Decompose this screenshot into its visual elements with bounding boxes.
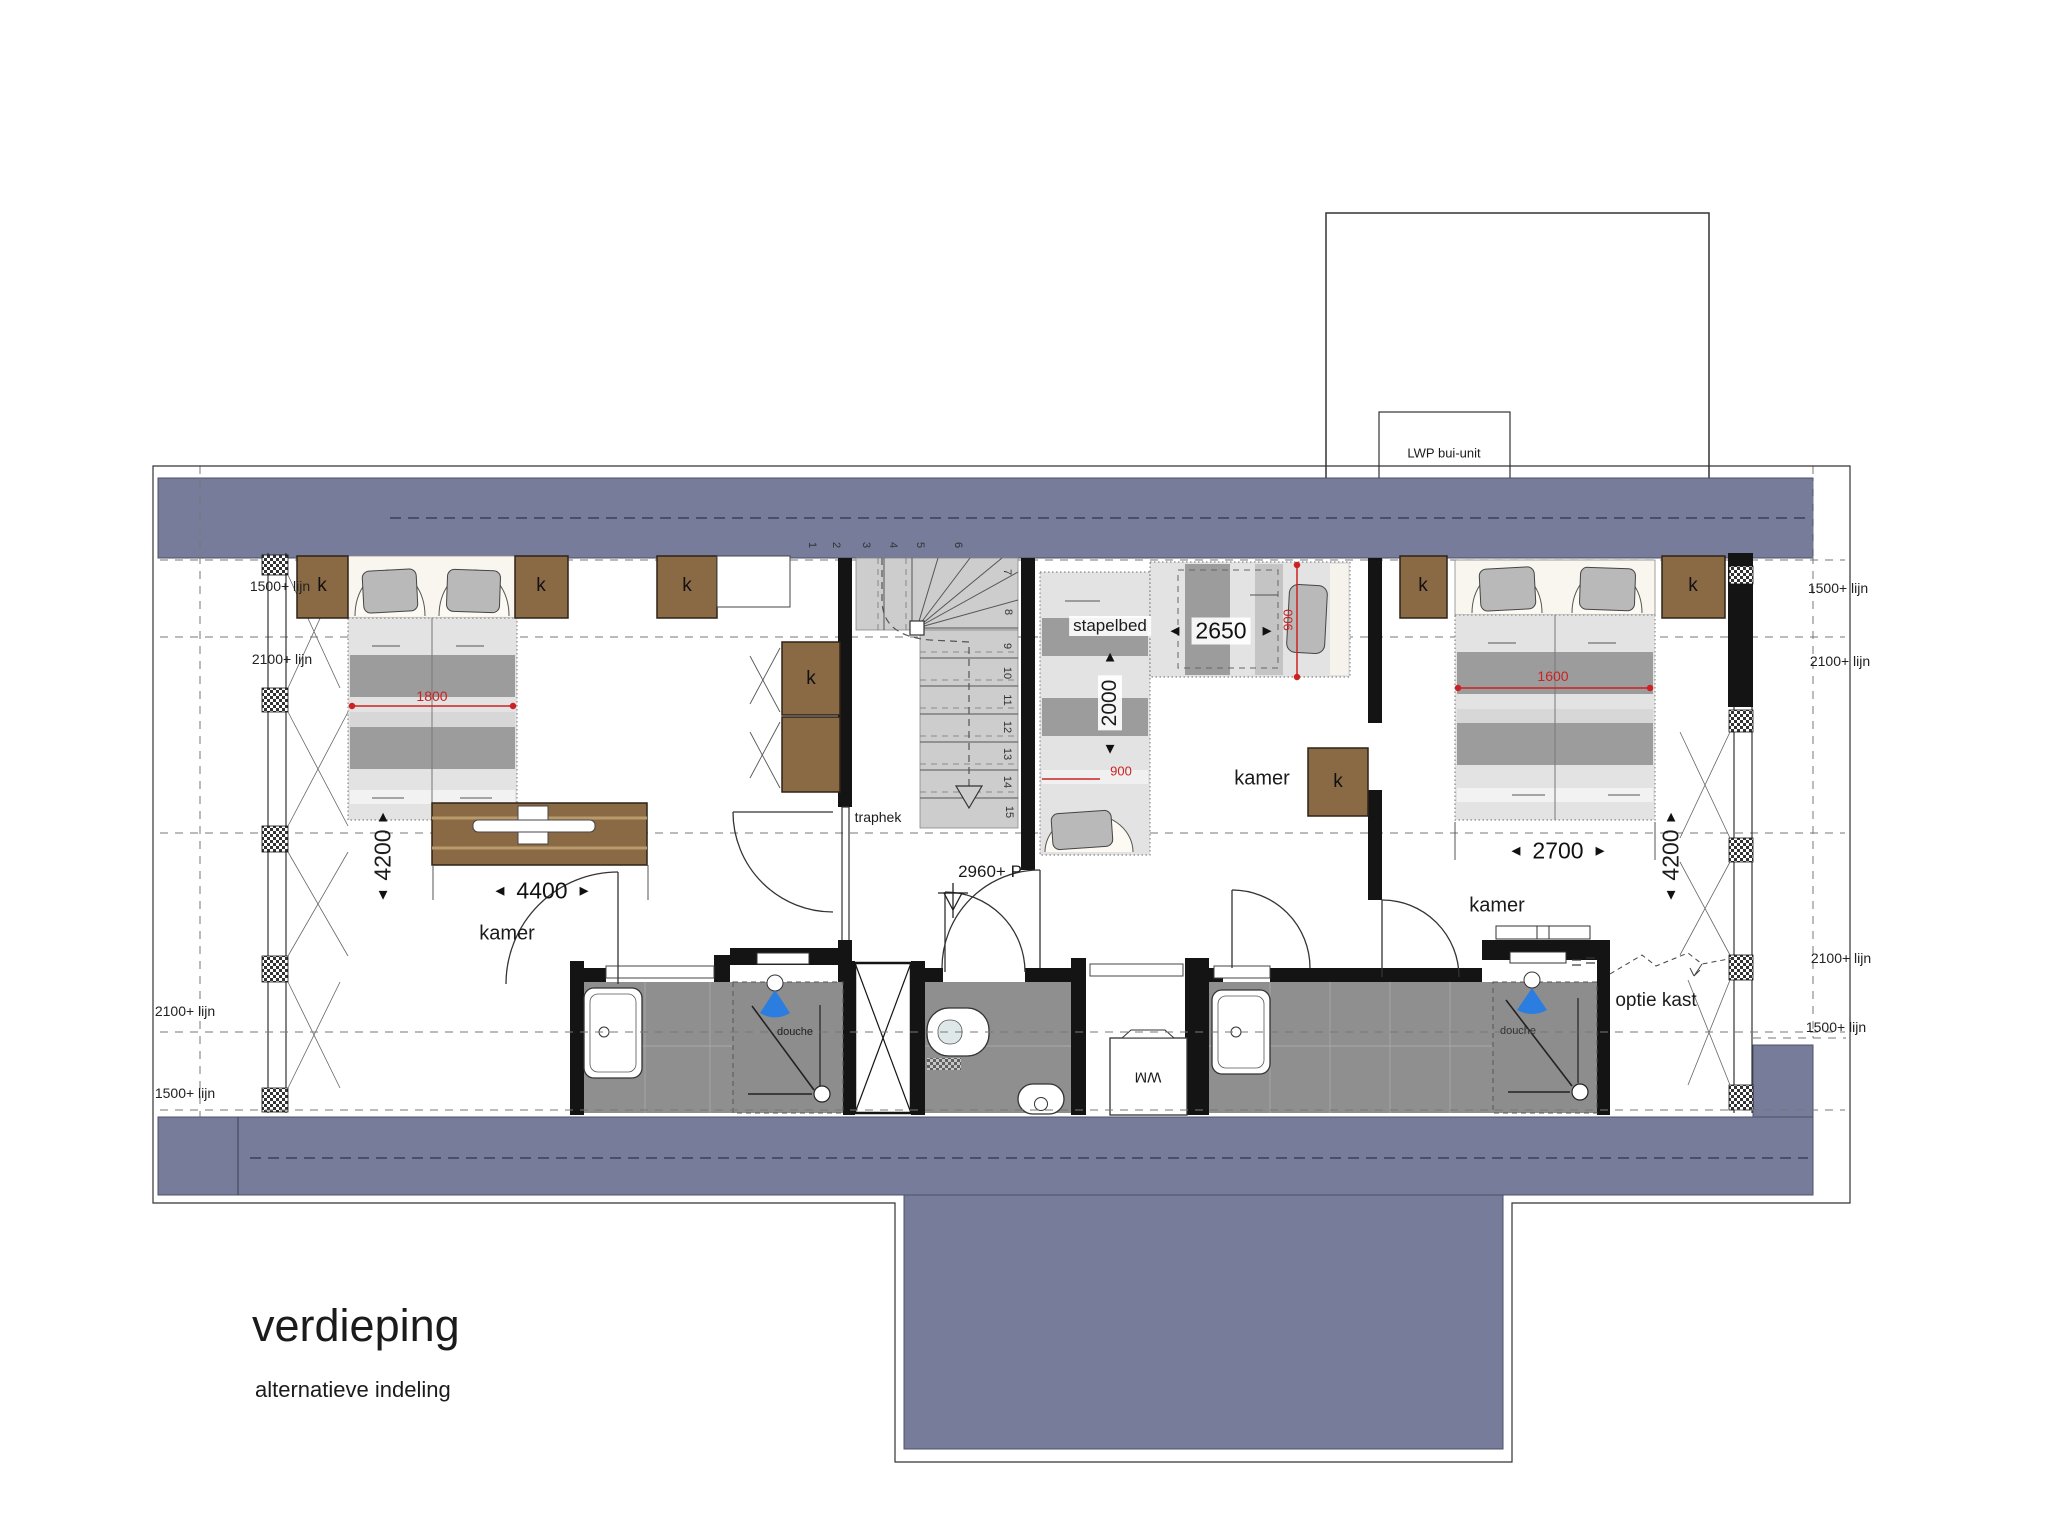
- height-line-2100-top-right: 2100+ lijn: [1810, 653, 1870, 669]
- stair-step-number: 5: [914, 542, 926, 548]
- stair-step-number: 6: [952, 542, 964, 548]
- stair-rail-label: traphek: [855, 809, 902, 825]
- arrow-left-icon: ◄: [493, 884, 508, 899]
- arrow-right-icon: ►: [577, 884, 592, 899]
- arrow-left-icon: ◄: [1509, 844, 1524, 859]
- bunk-bed: [1040, 572, 1150, 855]
- floor-plan: verdieping alternatieve indeling LWP bui…: [0, 0, 2048, 1536]
- arrow-right-icon: ►: [1260, 624, 1275, 639]
- stair-step-number: 9: [1001, 643, 1013, 649]
- toilet-room: [925, 982, 1071, 1114]
- bunkbed-label: stapelbed: [1069, 616, 1151, 636]
- stair-railing: [842, 807, 849, 940]
- dim-right-room-width: ◄ 2700 ►: [1509, 838, 1608, 865]
- dim-side-bed-width-red: 900: [1281, 609, 1296, 631]
- stair-step-number: 11: [1001, 694, 1013, 705]
- arrow-up-icon: ▲: [1664, 810, 1679, 825]
- arrow-up-icon: ▲: [376, 810, 391, 825]
- optie-kast-label: optie kast: [1615, 990, 1696, 1012]
- staircase: [856, 558, 1018, 828]
- closet-door-swings: [750, 648, 780, 788]
- dim-right-bed-width-red: 1600: [1537, 668, 1568, 684]
- closet-label: k: [806, 668, 816, 690]
- arrow-down-icon: ▼: [1664, 888, 1679, 903]
- arrow-up-icon: ▲: [1103, 650, 1118, 665]
- closet-label: k: [317, 575, 327, 597]
- stair-step-number: 15: [1003, 806, 1015, 818]
- height-line-1500-bottom-left: 1500+ lijn: [155, 1085, 215, 1101]
- level-marker: [938, 883, 968, 918]
- doors: [506, 812, 1459, 984]
- dim-bunk-length: 2000: [1098, 676, 1122, 731]
- washing-machine-label: WM: [1135, 1069, 1162, 1086]
- closet-label: k: [682, 575, 692, 597]
- stair-step-number: 13: [1001, 748, 1013, 760]
- stair-step-number: 2: [830, 542, 842, 548]
- desk: [717, 556, 790, 607]
- height-line-1500-bottom-right: 1500+ lijn: [1806, 1019, 1866, 1035]
- closet-label: k: [536, 575, 546, 597]
- arrow-left-icon: ◄: [1168, 624, 1183, 639]
- lwp-unit-label: LWP bui-unit: [1407, 446, 1480, 461]
- stair-step-number: 7: [1001, 569, 1013, 575]
- page-title: verdieping: [252, 1300, 460, 1352]
- right-bathroom: [1209, 926, 1597, 1113]
- room-label-right-bedroom: kamer: [1469, 895, 1525, 918]
- stair-step-number: 4: [887, 542, 899, 548]
- arrow-down-icon: ▼: [376, 888, 391, 903]
- height-line-1500-top-left: 1500+ lijn: [250, 578, 310, 594]
- shower-label-left: douche: [777, 1026, 813, 1038]
- dim-left-room-depth: 4200: [370, 829, 397, 880]
- stair-step-number: 12: [1001, 721, 1013, 733]
- dim-right-room-depth: 4200: [1658, 829, 1685, 880]
- dim-bunk-width-red: 900: [1110, 764, 1132, 779]
- dim-left-room-width: ◄ 4400 ►: [493, 878, 592, 905]
- wm-room: [1086, 964, 1187, 1115]
- level-mark-label: 2960+ P: [958, 862, 1022, 882]
- dim-left-bed-width-red: 1800: [416, 688, 447, 704]
- room-label-left-bedroom: kamer: [479, 923, 535, 946]
- height-line-2100-bottom-right: 2100+ lijn: [1811, 950, 1871, 966]
- shower-label-right: douche: [1500, 1025, 1536, 1037]
- right-bedroom-bed: [1455, 560, 1655, 860]
- stair-step-number: 14: [1001, 776, 1013, 788]
- closet-label: k: [1418, 575, 1428, 597]
- shaft: [855, 963, 911, 1113]
- page-subtitle: alternatieve indeling: [255, 1377, 451, 1403]
- stair-step-number: 10: [1001, 667, 1013, 679]
- stair-step-number: 1: [806, 542, 818, 548]
- closet-label: k: [1333, 771, 1343, 793]
- arrow-down-icon: ▼: [1103, 742, 1118, 757]
- height-line-2100-bottom-left: 2100+ lijn: [155, 1003, 215, 1019]
- height-line-1500-top-right: 1500+ lijn: [1808, 580, 1868, 596]
- height-line-2100-top-left: 2100+ lijn: [252, 651, 312, 667]
- room-label-middle-bedroom: kamer: [1234, 768, 1290, 791]
- roof-terrace: [1326, 213, 1709, 479]
- stair-step-number: 8: [1002, 609, 1014, 615]
- dim-bunk-room-width: ◄ 2650 ►: [1168, 618, 1275, 645]
- closet-label: k: [1688, 575, 1698, 597]
- left-window-wall: [262, 553, 348, 1113]
- stair-step-number: 3: [860, 542, 872, 548]
- arrow-right-icon: ►: [1593, 844, 1608, 859]
